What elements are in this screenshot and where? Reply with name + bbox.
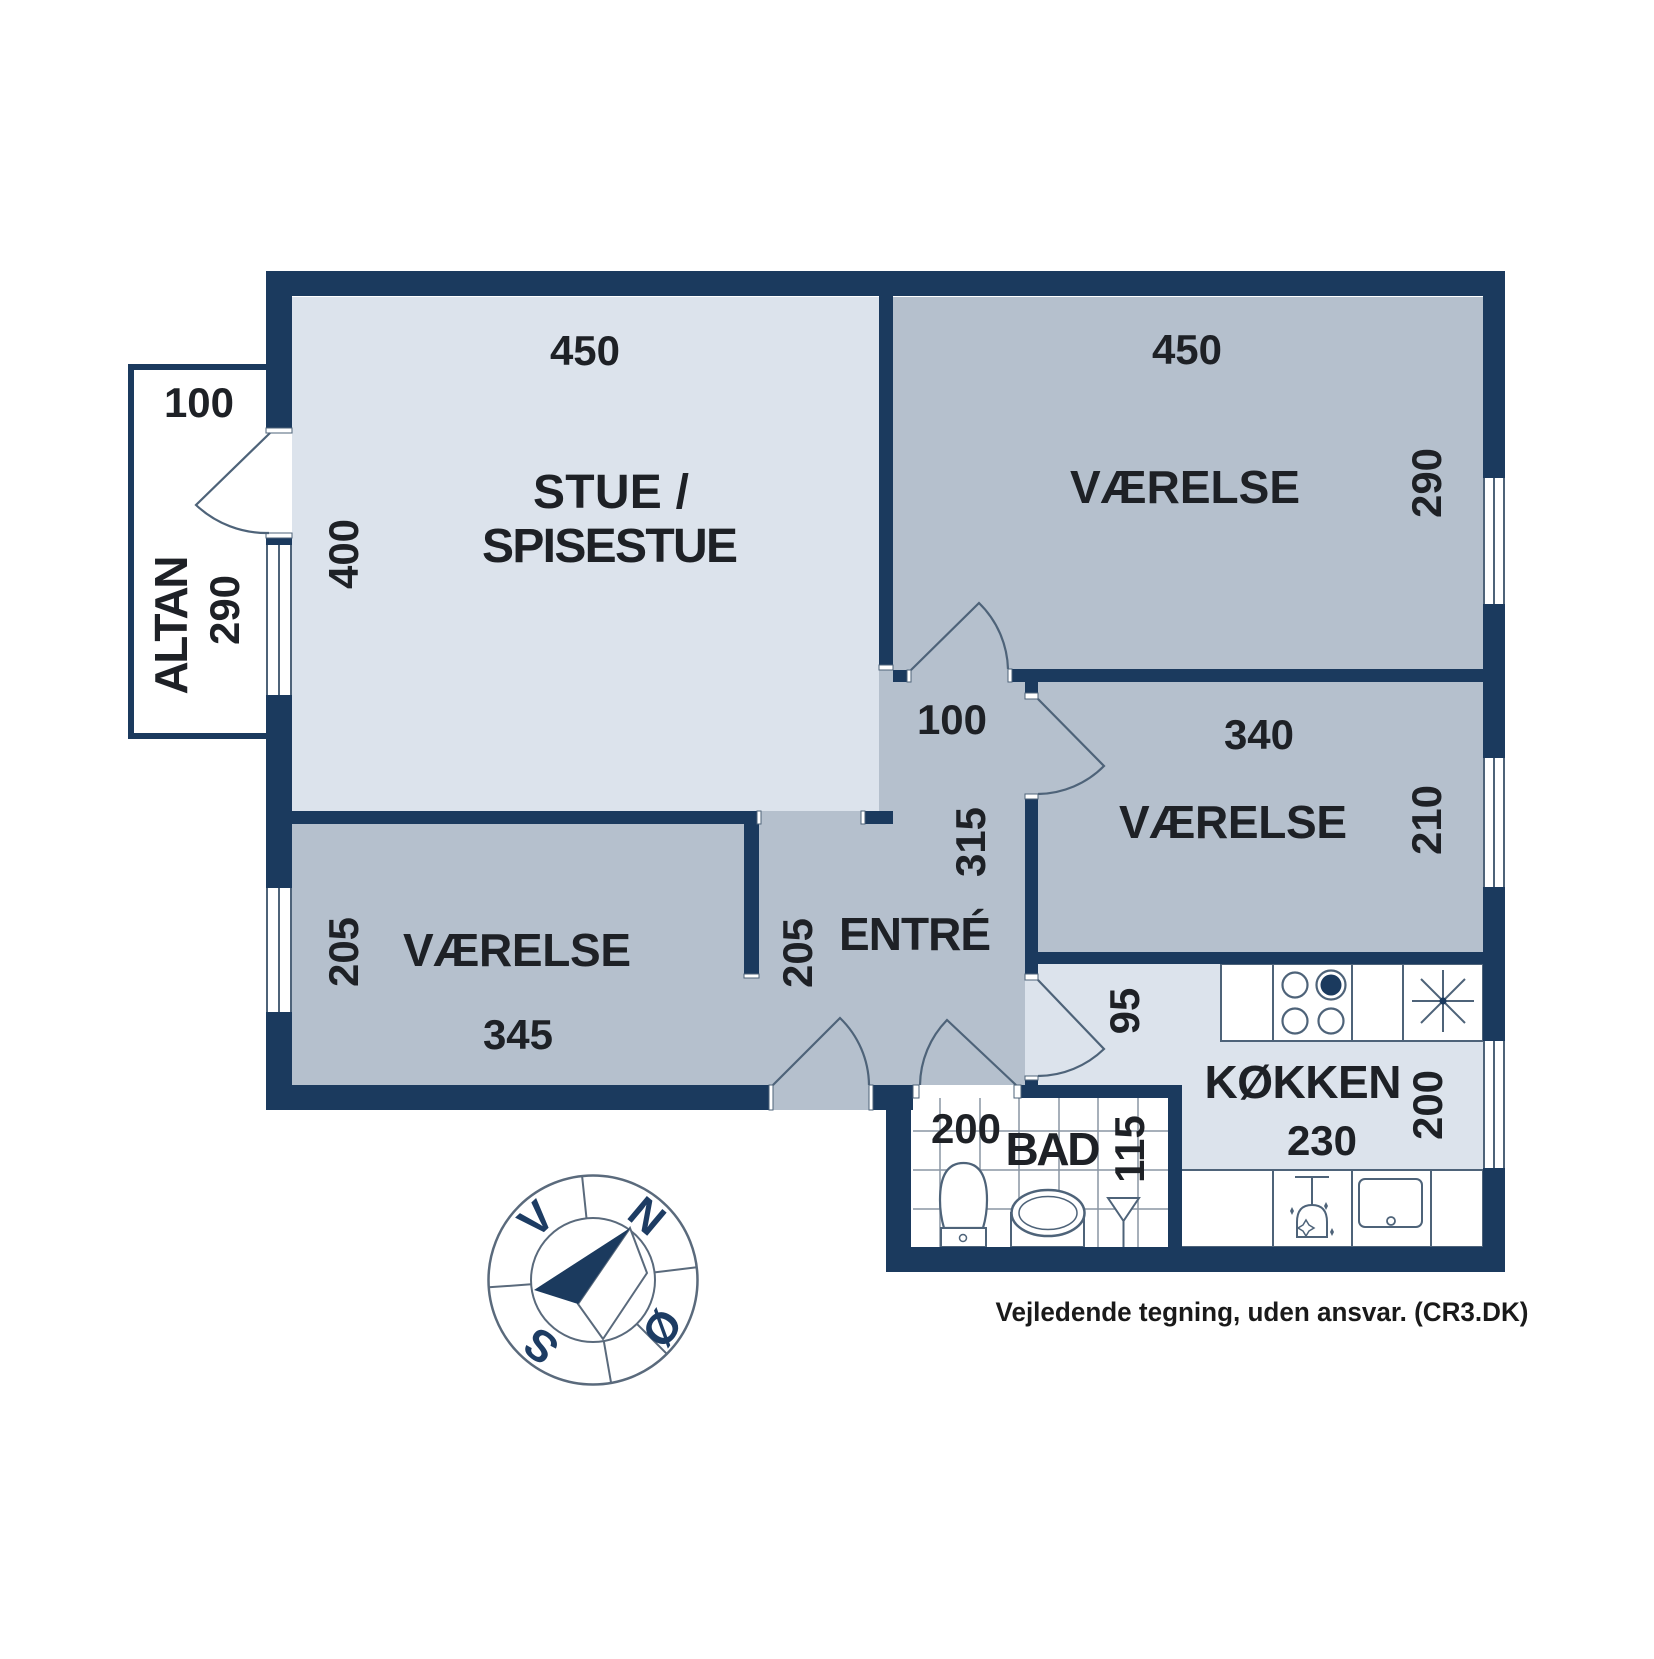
svg-text:ALTAN: ALTAN bbox=[145, 556, 197, 695]
svg-text:340: 340 bbox=[1224, 711, 1294, 758]
svg-text:210: 210 bbox=[1403, 785, 1450, 855]
svg-text:450: 450 bbox=[550, 327, 620, 374]
svg-text:345: 345 bbox=[483, 1011, 553, 1058]
svg-text:290: 290 bbox=[1403, 448, 1450, 518]
svg-text:ENTRÉ: ENTRÉ bbox=[839, 908, 991, 960]
svg-text:230: 230 bbox=[1287, 1117, 1357, 1164]
svg-text:100: 100 bbox=[164, 379, 234, 426]
svg-text:400: 400 bbox=[320, 519, 367, 589]
svg-text:95: 95 bbox=[1101, 988, 1148, 1035]
svg-text:VÆRELSE: VÆRELSE bbox=[1070, 461, 1300, 513]
svg-text:100: 100 bbox=[917, 696, 987, 743]
svg-text:200: 200 bbox=[931, 1105, 1001, 1152]
svg-text:205: 205 bbox=[320, 917, 367, 987]
svg-text:VÆRELSE: VÆRELSE bbox=[403, 924, 631, 976]
svg-text:315: 315 bbox=[947, 807, 994, 877]
svg-text:200: 200 bbox=[1404, 1070, 1451, 1140]
svg-text:290: 290 bbox=[201, 575, 248, 645]
svg-text:SPISESTUE: SPISESTUE bbox=[482, 520, 738, 573]
svg-text:205: 205 bbox=[774, 918, 821, 988]
svg-text:115: 115 bbox=[1106, 1115, 1153, 1183]
svg-text:Vejledende tegning, uden ansva: Vejledende tegning, uden ansvar. (CR3.DK… bbox=[996, 1297, 1529, 1327]
svg-text:KØKKEN: KØKKEN bbox=[1205, 1056, 1402, 1108]
svg-text:VÆRELSE: VÆRELSE bbox=[1119, 796, 1347, 848]
svg-text:STUE /: STUE / bbox=[533, 466, 689, 519]
svg-text:450: 450 bbox=[1152, 326, 1222, 373]
svg-text:BAD: BAD bbox=[1006, 1123, 1101, 1175]
